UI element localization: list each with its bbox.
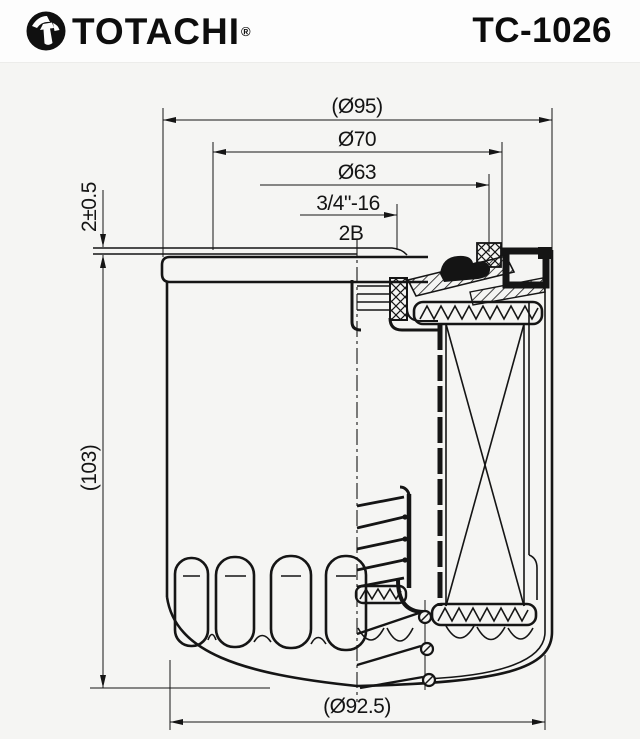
header: TOTACHI® TC-1026 bbox=[0, 0, 640, 63]
dim-body-diameter: (Ø92.5) bbox=[323, 695, 391, 718]
registered-mark: ® bbox=[241, 24, 251, 39]
brand-name: TOTACHI bbox=[72, 13, 240, 50]
dimension-labels: (Ø95) Ø70 Ø63 3/4"-16 2B 2±0.5 (103) (Ø9… bbox=[78, 95, 391, 718]
dim-thread-class: 2B bbox=[339, 222, 364, 245]
dim-thread: 3/4"-16 bbox=[316, 192, 380, 215]
totachi-logo-icon bbox=[24, 9, 68, 53]
brand: TOTACHI® bbox=[24, 9, 251, 53]
dim-total-height: (103) bbox=[78, 445, 101, 492]
dim-rim-height: 2±0.5 bbox=[78, 182, 101, 232]
retainer-block bbox=[477, 243, 501, 267]
drawing-canvas: (Ø95) Ø70 Ø63 3/4"-16 2B 2±0.5 (103) (Ø9… bbox=[0, 62, 640, 739]
filter-body-exterior bbox=[93, 248, 428, 686]
dim-d70: Ø70 bbox=[338, 128, 376, 151]
dim-outer-diameter: (Ø95) bbox=[331, 95, 382, 118]
dim-d63: Ø63 bbox=[338, 161, 376, 184]
grip-flutes bbox=[175, 556, 366, 650]
filter-element bbox=[414, 302, 542, 625]
filter-body-section bbox=[352, 243, 552, 688]
section-flutes bbox=[358, 626, 533, 641]
filter-technical-drawing: (Ø95) Ø70 Ø63 3/4"-16 2B 2±0.5 (103) (Ø9… bbox=[0, 62, 640, 739]
bypass-valve bbox=[356, 580, 435, 688]
part-number: TC-1026 bbox=[472, 11, 612, 51]
